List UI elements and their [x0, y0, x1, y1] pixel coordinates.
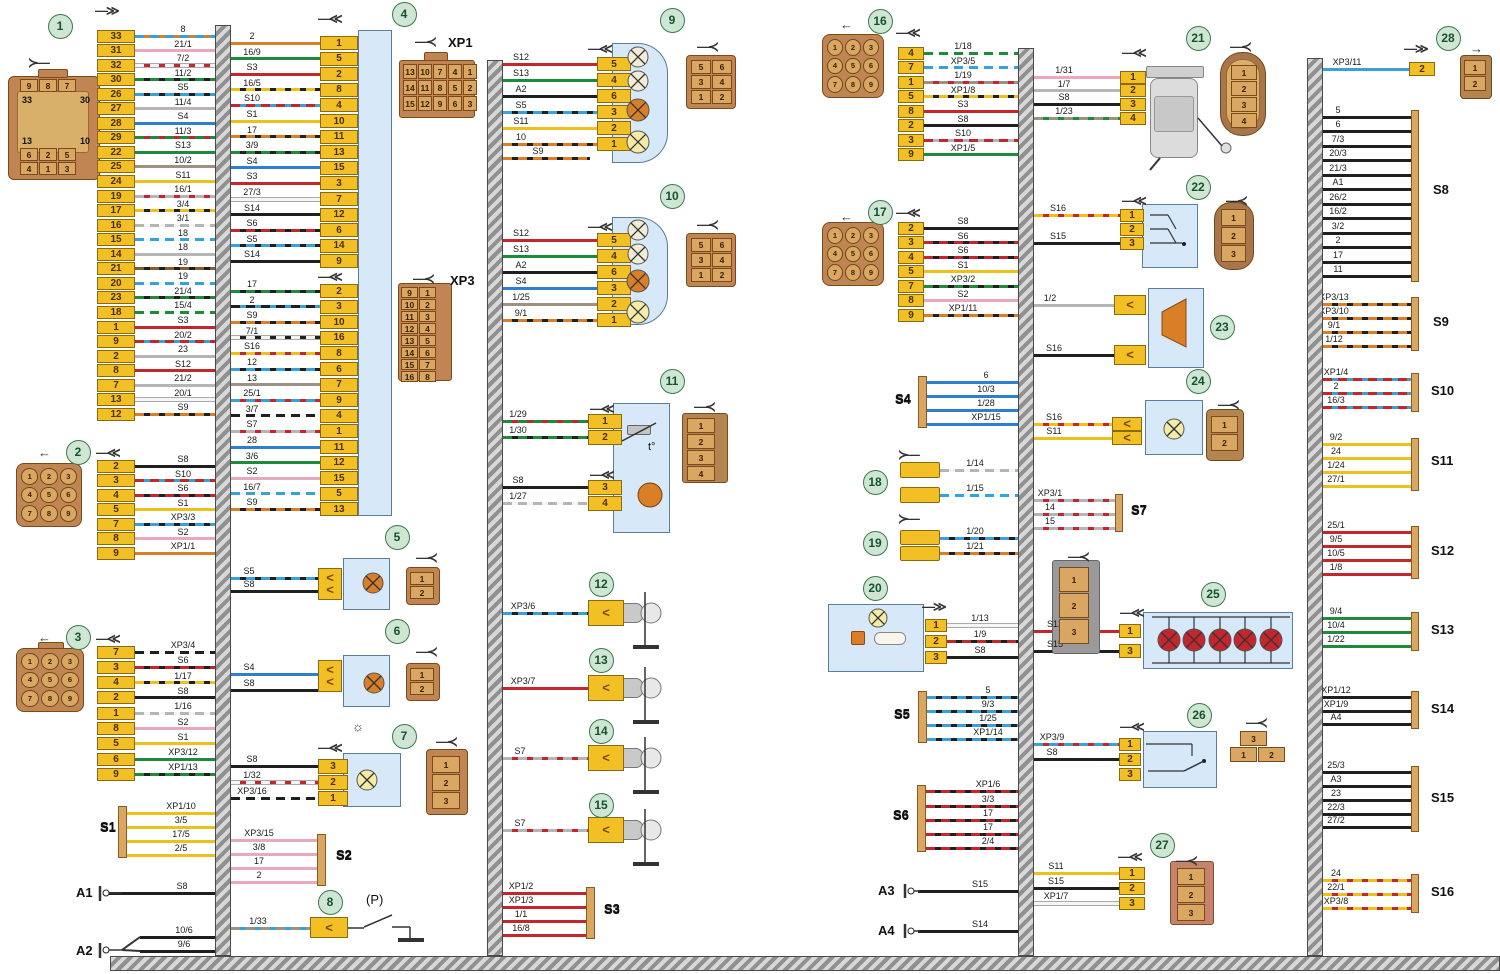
decor-circle [641, 748, 661, 768]
plug-pin-2: 2 [1177, 886, 1205, 903]
pin-conn1-23: 23 [97, 291, 135, 304]
pin-conn4-top-13: 13 [320, 145, 358, 159]
chevron-icon: < [602, 682, 610, 694]
arrow-icon: —≪ [1122, 46, 1145, 59]
wire-label: 1/32 [243, 771, 261, 780]
item-number-3: 3 [66, 625, 91, 650]
wire-label: S1 [177, 499, 188, 508]
plug-pin-13: 13 [401, 335, 418, 346]
wire-label: S11 [513, 117, 528, 126]
plug-pin-4: 4 [712, 75, 732, 89]
wire-label: 21/3 [1329, 164, 1347, 173]
wire-1/16 [135, 712, 215, 715]
socket-pin-9: 9 [863, 76, 879, 93]
pin-conn28-2: 2 [1409, 62, 1435, 76]
wire-1/18 [924, 52, 1018, 55]
wire-13 [231, 383, 320, 386]
pin-lamp7-3: 3 [318, 759, 348, 774]
wire-label: 24 [1331, 447, 1341, 456]
wire-16/3 [1323, 406, 1411, 409]
wire-label: S15 [1050, 232, 1066, 241]
wire-1/32 [231, 781, 318, 784]
wire-XP3/6 [503, 612, 588, 615]
pin-conn3-5: 5 [97, 737, 135, 750]
wire-XP3/11 [1323, 68, 1409, 71]
item-number-18: 18 [863, 470, 888, 495]
wire-label: 11/4 [175, 98, 192, 107]
wire-S4 [503, 287, 597, 290]
device-box [1148, 288, 1204, 368]
item-number-23: 23 [1210, 315, 1235, 340]
wire-label: S6 [957, 246, 968, 255]
pin-conn1-27: 27 [97, 102, 135, 115]
plug-grid: 12 [1464, 60, 1486, 91]
plug-pin-6: 6 [448, 96, 462, 111]
wire-21/4 [135, 296, 215, 299]
wire-S1 [135, 742, 215, 745]
wire-S11 [135, 180, 215, 183]
item-number-4: 4 [392, 2, 417, 27]
wire-S11 [1034, 872, 1119, 875]
wire-20/2 [135, 340, 215, 343]
wire-label: 7/2 [177, 54, 190, 63]
item-number-26: 26 [1187, 703, 1212, 728]
pin-cluster10-4: 4 [597, 249, 631, 263]
pin-conn2-3: 3 [97, 474, 135, 487]
wire-label: 1/31 [1055, 66, 1073, 75]
wire-1/2 [1034, 304, 1114, 307]
pin-conn4-bottom-4: 4 [320, 409, 358, 423]
pin-switch22-3: 3 [1120, 237, 1144, 250]
bundle-label-S15: S15 [1431, 790, 1454, 805]
wire-7/2 [135, 64, 215, 67]
arrow-icon: —≪ [318, 12, 341, 25]
wire-S15 [918, 890, 1018, 893]
pin-conn17-5: 5 [898, 265, 924, 278]
wire-label: 19 [178, 272, 188, 281]
socket-corner-label: 13 [22, 137, 32, 146]
wire-S9 [231, 321, 320, 324]
plug-pin-8: 8 [39, 79, 57, 92]
bundle-bar-S6 [917, 785, 926, 852]
wire-label: XP3/10 [1319, 307, 1349, 316]
wire-15/4 [135, 311, 215, 314]
wire-S6 [924, 241, 1018, 244]
plug-pin-12: 12 [401, 323, 418, 334]
wire-label: XP3/3 [171, 513, 196, 522]
wire-label: 3/6 [246, 452, 259, 461]
wire-XP1/13 [135, 773, 215, 776]
pin-conn4-bottom-12: 12 [320, 456, 358, 470]
plug-grid: 123 [1221, 209, 1246, 262]
wire-XP3/3 [135, 523, 215, 526]
wire-S8 [231, 590, 318, 593]
wire-label: XP3/11 [1333, 58, 1362, 67]
wire-label: 2 [249, 296, 254, 305]
decor-circle [103, 947, 109, 953]
wire-label: 9/1 [1328, 321, 1341, 330]
pin-conn3-2: 2 [97, 691, 135, 704]
wire-label: S12 [513, 229, 529, 238]
wire-label: S2 [957, 290, 968, 299]
item-number-5: 5 [385, 525, 410, 550]
pin-conn4-bottom-3: 3 [320, 300, 358, 314]
wire-label: 2 [1335, 236, 1340, 245]
wire-XP1/1 [135, 552, 215, 555]
diagram-label-(P): (P) [366, 893, 383, 906]
arrow-icon: ≻— [898, 512, 918, 525]
wire-S13 [503, 255, 597, 258]
socket-pin-8: 8 [845, 264, 861, 281]
pin-conn3-3: 3 [97, 661, 135, 674]
pin-conn1-14: 14 [97, 248, 135, 261]
wire-label: A2 [515, 261, 526, 270]
plug-pin-3: 3 [1221, 245, 1246, 262]
wire-label: XP1/14 [973, 728, 1003, 737]
wire-label: XP1/15 [971, 413, 1001, 422]
pin-lamp7-2: 2 [318, 775, 348, 790]
wire-label: 10 [516, 133, 526, 142]
pin-conn4-bottom-11: 11 [320, 440, 358, 454]
diagram-label-S5: S5 [894, 707, 910, 720]
wire-label: 19 [178, 258, 188, 267]
chevron-connector: < [1114, 295, 1146, 315]
wire-label: S3 [246, 63, 257, 72]
plug-grid: 123 [1177, 868, 1205, 921]
socket-pin-9: 9 [863, 264, 879, 281]
wire-label: XP1/8 [951, 86, 976, 95]
bundle-bar-S8 [1411, 110, 1419, 282]
socket-pin-3: 3 [863, 39, 879, 56]
wire-XP1/7 [1034, 902, 1119, 905]
wire-label: 1/17 [174, 672, 192, 681]
wire-S8 [924, 227, 1018, 230]
wire-S8 [109, 892, 215, 895]
connector-plate [900, 462, 940, 478]
wire-S2 [135, 727, 215, 730]
chevron-connector: << [318, 568, 342, 600]
wire-XP1/5 [924, 153, 1018, 156]
wire-S16 [1034, 354, 1114, 357]
wire-label: XP1/9 [1324, 700, 1349, 709]
plug-grid: 3 [1240, 731, 1267, 746]
plug-grid: 12 [1230, 747, 1285, 762]
wire-1/30 [503, 436, 588, 439]
pin-conn2-9: 9 [97, 547, 135, 560]
wire-label: 6 [1335, 120, 1340, 129]
wire-16/5 [231, 88, 320, 91]
socket-pin-3: 3 [863, 227, 879, 244]
pin-conn1-15: 15 [97, 233, 135, 246]
plug-pin-13: 13 [403, 64, 417, 79]
wire-label: 1/13 [971, 614, 989, 623]
bundle-label-S16: S16 [1431, 884, 1454, 899]
wire-label: 16/7 [243, 483, 261, 492]
wire-S4 [231, 673, 318, 676]
plug-grid: 12 [410, 572, 434, 599]
wire-S9 [503, 157, 590, 160]
wire-S16 [1034, 214, 1120, 217]
wire-1/9 [947, 640, 1018, 643]
wire-XP3/8 [1323, 907, 1411, 910]
wire-label: S6 [246, 219, 257, 228]
wire-label: S8 [243, 679, 254, 688]
wire-label: S11 [175, 171, 190, 180]
wire-label: S9 [177, 403, 188, 412]
wire-label: S15 [1048, 877, 1064, 886]
wire-label: 15 [1045, 517, 1055, 526]
wire-label: S8 [974, 646, 985, 655]
connector-plate [874, 632, 906, 645]
wire-1/8 [1323, 573, 1411, 576]
wire-label: 1/2 [1044, 294, 1057, 303]
plug-grid: 12 [410, 668, 434, 695]
wire-label: 9/3 [982, 700, 995, 709]
pin-conn1-19: 19 [97, 190, 135, 203]
diagram-label-A3: A3 [878, 884, 895, 897]
wire-S8 [947, 656, 1018, 659]
wire-1/14 [940, 469, 1018, 472]
device-box [343, 655, 390, 707]
wire-1/27 [503, 502, 588, 505]
pin-conn1-1: 1 [97, 321, 135, 334]
wire-label: S13 [513, 69, 529, 78]
plug-pin-7: 7 [419, 359, 436, 370]
pin-conn1-22: 22 [97, 146, 135, 159]
wire-label: XP3/2 [951, 275, 976, 284]
socket-corner-label: 10 [80, 137, 90, 146]
wire-XP1/15 [927, 423, 1018, 426]
wire-16/2 [1323, 217, 1411, 220]
plug-pin-1: 1 [1211, 416, 1238, 433]
wire-label: 14 [1045, 503, 1055, 512]
wiring-diagram-canvas: XP1/103/517/52/5S1XP3/153/8172S2XP1/2XP1… [0, 0, 1500, 974]
plug-pin-3: 3 [432, 792, 460, 809]
pin-conn16-2: 2 [898, 119, 924, 132]
wire-label: S6 [177, 484, 188, 493]
wire-label: XP3/9 [1040, 733, 1065, 742]
arrow-icon: —≫ [1404, 42, 1427, 55]
pin-conn4-bottom-13: 13 [320, 502, 358, 516]
plug-pin-6: 6 [712, 60, 732, 74]
wire-S7 [503, 757, 588, 760]
chevron-icon: < [602, 607, 610, 619]
plug-pin-4: 4 [20, 162, 38, 175]
wire-S3 [135, 326, 215, 329]
wire-label: 13 [247, 374, 257, 383]
wire-A2 [503, 95, 597, 98]
wire-label: 1/24 [1327, 461, 1345, 470]
plug-pin-5: 5 [58, 148, 76, 161]
wire-label: 17 [983, 809, 993, 818]
connector-plate [1154, 96, 1194, 132]
plug-pin-2: 2 [410, 586, 434, 599]
wire-label: S10 [244, 94, 260, 103]
wire-S6 [231, 229, 320, 232]
pin-conn2-2: 2 [97, 460, 135, 473]
wire-label: 20/3 [1329, 149, 1347, 158]
plug-grid: 91102113124135146157168 [401, 287, 436, 382]
wire-label: 10/5 [1327, 549, 1345, 558]
socket-pin-9: 9 [61, 690, 79, 707]
plug-pin-9: 9 [401, 287, 418, 298]
plug-pin-14: 14 [401, 347, 418, 358]
wire-label: 9/5 [1330, 535, 1343, 544]
harness-bus-4 [1307, 58, 1323, 956]
socket-corner-label: 33 [22, 96, 32, 105]
wire-label: S3 [177, 316, 188, 325]
pin-conn4-top-15: 15 [320, 161, 358, 175]
bundle-bar-S1 [118, 806, 127, 858]
connector-plate [38, 69, 68, 78]
plug-pin-5: 5 [691, 238, 711, 252]
socket-pin-6: 6 [60, 487, 77, 504]
plug-pin-8: 8 [419, 371, 436, 382]
wire-label: 8 [180, 25, 185, 34]
wire-label: 1/22 [1327, 635, 1345, 644]
arrow-icon: —≪ [96, 446, 119, 459]
wire-label: 27/1 [1327, 475, 1345, 484]
bundle-bar-S2 [317, 834, 326, 886]
plug-pin-15: 15 [401, 359, 418, 370]
socket-pin-7: 7 [21, 505, 38, 522]
pin-conn1-17: 17 [97, 204, 135, 217]
plug-pin-1: 1 [1231, 65, 1257, 80]
pin-lamp27-3: 3 [1119, 897, 1145, 910]
pin-conn4-top-6: 6 [320, 223, 358, 237]
wire-9/6 [140, 950, 215, 953]
pin-cluster9-5: 5 [597, 57, 631, 71]
wire-S2 [135, 537, 215, 540]
wire-1/25 [503, 303, 597, 306]
wire-label: 3/4 [177, 200, 190, 209]
pin-conn1-32: 32 [97, 59, 135, 72]
wire-5 [927, 696, 1018, 699]
wire-label: XP3/8 [1324, 897, 1349, 906]
wire-label: 1/15 [966, 484, 984, 493]
wire-label: S8 [957, 115, 968, 124]
wire-S10 [924, 139, 1018, 142]
plug-pin-14: 14 [403, 80, 417, 95]
plug-pin-3: 3 [1177, 904, 1205, 921]
wire-11 [1323, 275, 1411, 278]
pin-conn4-top-8: 8 [320, 83, 358, 97]
bundle-label-S11: S11 [1431, 453, 1453, 468]
wire-S13 [135, 151, 215, 154]
wire-label: 2 [1333, 382, 1338, 391]
wire-S6 [924, 256, 1018, 259]
arrow-icon: ← [38, 631, 49, 644]
wire-S12 [503, 239, 597, 242]
wire-XP1/11 [924, 314, 1018, 317]
arrow-icon: —≫ [95, 4, 118, 17]
wire-label: 21/1 [174, 40, 192, 49]
pin-lighter20-2: 2 [925, 635, 947, 648]
wire-label: 5 [985, 686, 990, 695]
wire-S7 [231, 430, 320, 433]
wire-label: S8 [512, 476, 523, 485]
plug-pin-2: 2 [1258, 747, 1285, 762]
wire-S12 [503, 63, 597, 66]
pin-conn4-bottom-6: 6 [320, 362, 358, 376]
wire-label: S16 [1046, 344, 1062, 353]
plug-pin-9: 9 [20, 79, 38, 92]
pin-conn3-7: 7 [97, 646, 135, 659]
wire-label: XP1/7 [1044, 892, 1069, 901]
plug-pin-3: 3 [58, 162, 76, 175]
wire-label: S3 [957, 100, 968, 109]
pin-switch22-1: 1 [1120, 209, 1144, 222]
chevron-icon: < [602, 752, 610, 764]
wire-label: XP3/7 [511, 677, 536, 686]
arrow-icon: —≪ [96, 632, 119, 645]
wire-label: 1/30 [509, 426, 527, 435]
pin-lamp27-1: 1 [1119, 867, 1145, 880]
wire-label: XP3/16 [237, 787, 267, 796]
pin-lamp7-1: 1 [318, 791, 348, 806]
pin-heated25-1: 1 [1119, 624, 1141, 638]
wire-S15 [1034, 242, 1120, 245]
wire-9/1 [503, 319, 597, 322]
wire-S3 [231, 182, 320, 185]
chevron-icon: < [1126, 299, 1134, 311]
pin-conn16-4: 4 [898, 47, 924, 60]
plug-pin-6: 6 [20, 148, 38, 161]
wire-S3 [924, 110, 1018, 113]
pin-conn1-13: 13 [97, 393, 135, 406]
wire-XP1/14 [927, 738, 1018, 741]
wire-label: S1 [177, 733, 188, 742]
wire-21/1 [135, 49, 215, 52]
socket-pin-1: 1 [21, 468, 38, 485]
wire-label: XP1/4 [1324, 368, 1349, 377]
wire-S15 [1034, 887, 1119, 890]
wire-label: 21/4 [174, 287, 192, 296]
wire-label: 3/8 [253, 843, 266, 852]
pin-conn4-top-3: 3 [320, 176, 358, 190]
wire-S8 [1034, 758, 1119, 761]
wire-2 [231, 881, 317, 884]
wire-1/13 [947, 624, 1018, 627]
bundle-bar-S12 [1411, 526, 1419, 579]
wire-XP3/5 [924, 66, 1018, 69]
pin-conn1-33: 33 [97, 30, 135, 43]
wire-28 [231, 446, 320, 449]
plug-pin-2: 2 [1211, 434, 1238, 451]
wire-6 [1323, 130, 1411, 133]
wire-label: 11/3 [175, 127, 192, 136]
arrow-icon: —≪ [1118, 850, 1141, 863]
pin-conn4-top-5: 5 [320, 52, 358, 66]
plug-pin-2: 2 [712, 90, 732, 104]
wire-label: 17 [247, 280, 257, 289]
wire-11/4 [135, 107, 215, 110]
wire-18 [135, 253, 215, 256]
wire-label: S7 [246, 420, 257, 429]
wire-label: S14 [244, 204, 260, 213]
arrow-icon: —≺ [1246, 716, 1266, 729]
wire-label: 16/8 [512, 924, 530, 933]
arrow-icon: ☼ [352, 720, 362, 733]
wire-label: S16 [1046, 413, 1062, 422]
socket-pin-1: 1 [827, 227, 843, 244]
wire-label: XP1/12 [1321, 686, 1351, 695]
wire-3/6 [231, 461, 320, 464]
wire-S8 [1034, 103, 1120, 106]
wire-S10 [231, 104, 320, 107]
plug-pin-3: 3 [691, 253, 711, 267]
item-number-19: 19 [863, 531, 888, 556]
